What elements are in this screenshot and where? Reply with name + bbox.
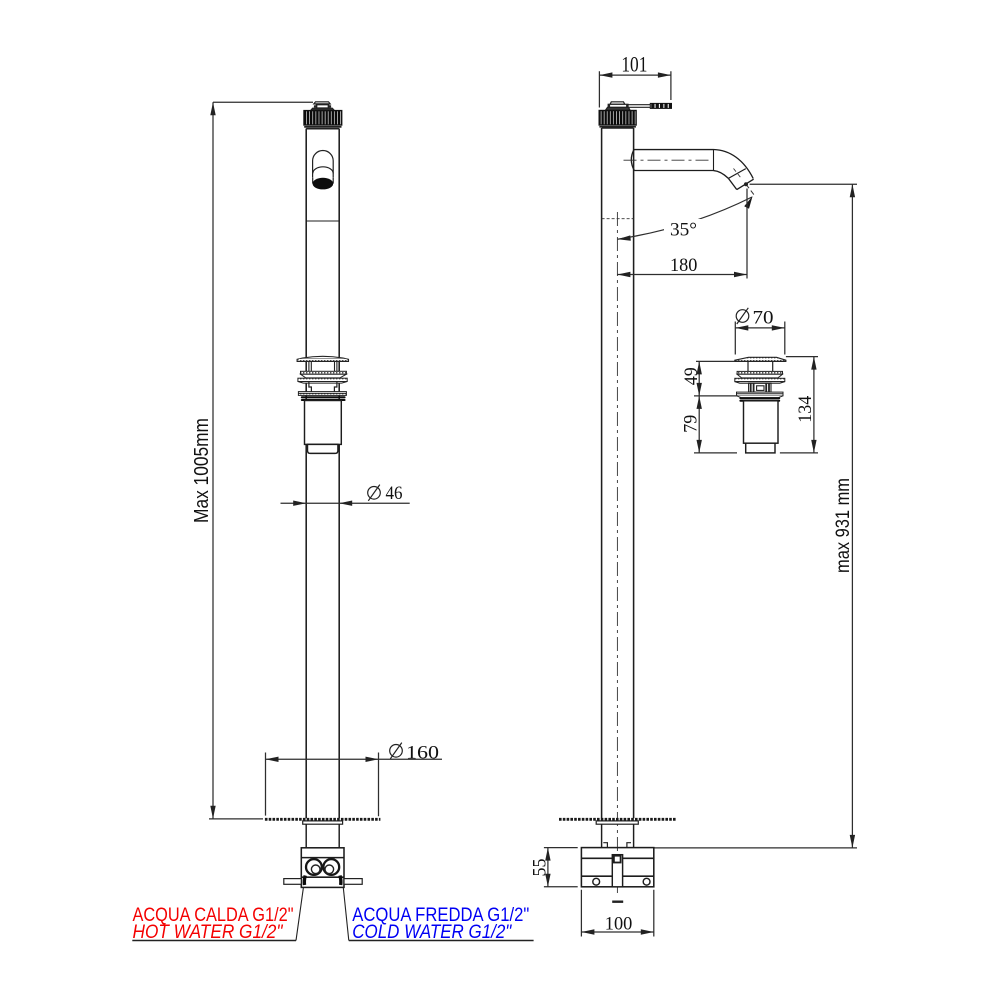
svg-text:101: 101 (621, 52, 647, 77)
svg-text:70: 70 (753, 308, 774, 329)
svg-text:Max 1005mm: Max 1005mm (191, 418, 213, 523)
svg-text:HOT WATER G1/2": HOT WATER G1/2" (133, 922, 284, 943)
svg-text:46: 46 (386, 483, 403, 504)
svg-text:160: 160 (406, 743, 439, 764)
svg-text:134: 134 (795, 395, 816, 422)
svg-text:180: 180 (670, 255, 697, 276)
svg-text:35°: 35° (670, 220, 697, 241)
svg-text:49: 49 (681, 367, 702, 385)
svg-text:100: 100 (605, 913, 633, 934)
svg-text:COLD WATER G1/2": COLD WATER G1/2" (352, 922, 512, 943)
svg-text:max 931 mm: max 931 mm (833, 478, 854, 573)
svg-text:55: 55 (530, 859, 551, 877)
svg-text:79: 79 (680, 415, 701, 433)
